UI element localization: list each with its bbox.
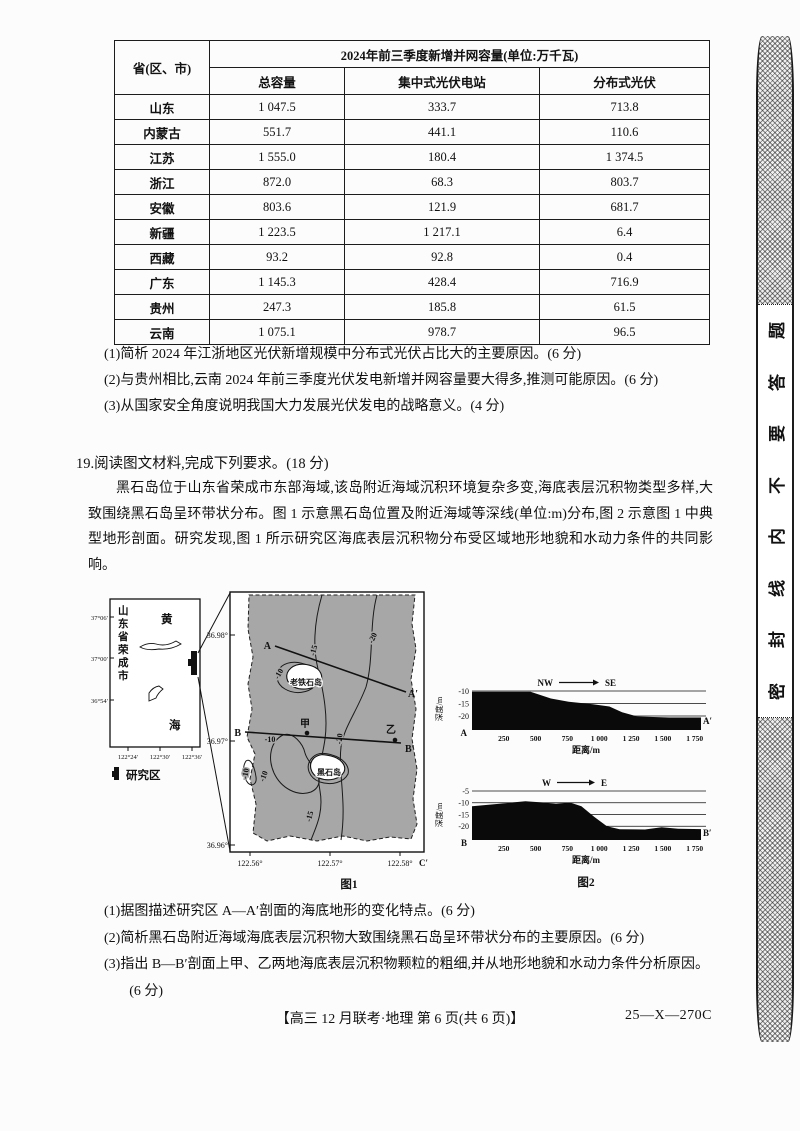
table-row: 广东1 145.3428.4716.9 (115, 270, 710, 295)
profile-b-start: B (461, 838, 467, 848)
table-row: 江苏1 555.0180.41 374.5 (115, 145, 710, 170)
map-lon-2: 122.57° (317, 859, 342, 868)
depth-tick-label: -20 (458, 712, 469, 721)
seal-char: 线 (763, 580, 788, 597)
profile-b-plot: -5-10-15-202505007501 0001 2501 5001 750 (458, 787, 706, 853)
distance-tick-label: 750 (562, 844, 574, 853)
seal-char: 内 (763, 528, 788, 545)
depth-tick-label: -10 (458, 799, 469, 808)
inset-lat-3: 36°54′ (91, 698, 109, 705)
svg-text:研究区: 研究区 (126, 768, 161, 782)
distance-tick-label: 1 750 (686, 844, 703, 853)
table-row: 西藏93.292.80.4 (115, 245, 710, 270)
q18-item-2: (2)与贵州相比,云南 2024 年前三季度光伏发电新增并网容量要大得多,推测可… (104, 368, 719, 394)
island-lower-label: 黑石岛 (317, 767, 341, 777)
table-row: 浙江872.068.3803.7 (115, 170, 710, 195)
question19-subquestions: (1)据图描述研究区 A—A′剖面的海底地形的变化特点。(6 分) (2)简析黑… (104, 899, 716, 1005)
question18-subquestions: (1)简析 2024 年江浙地区光伏新增规模中分布式光伏占比大的主要原因。(6 … (104, 342, 719, 420)
distance-tick-label: 500 (530, 844, 542, 853)
profile-b-dir-to: E (601, 778, 607, 788)
zoom-connector-top (198, 593, 230, 653)
depth-tick-label: -15 (458, 810, 469, 819)
seal-char: 封 (763, 631, 788, 648)
inset-lat-1: 37°06′ (91, 615, 109, 622)
distance-tick-label: 250 (498, 844, 510, 853)
q18-item-3: (3)从国家安全角度说明我国大力发展光伏发电的战略意义。(4 分) (104, 394, 719, 420)
distance-tick-label: 1 500 (654, 734, 671, 743)
svg-text:A′: A′ (408, 689, 418, 700)
svg-text:省: 省 (117, 630, 129, 643)
point-yi-label: 乙 (386, 724, 396, 736)
distance-tick-label: 1 750 (686, 734, 703, 743)
seal-text-window: 题 答 要 不 内 线 封 密 (758, 304, 792, 718)
q19-item-3: (3)指出 B—B′剖面上甲、乙两地海底表层沉积物颗粒的粗细,并从地形地貌和水动… (104, 952, 716, 1005)
table-span-header: 2024年前三季度新增并网容量(单位:万千瓦) (210, 41, 710, 68)
depth-tick-label: -15 (458, 699, 469, 708)
profile-a-dir-to: SE (605, 678, 616, 688)
seal-char: 题 (763, 322, 788, 339)
svg-text:市: 市 (118, 669, 129, 682)
distance-tick-label: 250 (498, 734, 510, 743)
question19-material: 黑石岛位于山东省荣成市东部海域,该岛附近海域沉积环境复杂多变,海底表层沉积物类型… (88, 476, 713, 578)
table-subheader-total: 总容量 (210, 68, 345, 95)
distance-tick-label: 1 250 (623, 734, 640, 743)
map-lat-1: 36.98° (207, 631, 228, 640)
figure2-caption: 图2 (577, 875, 594, 889)
map-lon-1: 122.56° (237, 859, 262, 868)
seal-char: 不 (763, 477, 788, 494)
map-lat-2: 36.97° (207, 737, 228, 746)
inset-lon-1: 122°24′ (118, 754, 139, 761)
figure-area: 37°06′ 37°00′ 36°54′ 山 东 省 荣 成 市 黄 海 12 (85, 589, 735, 895)
seal-char: 要 (763, 425, 788, 442)
table-col0-header: 省(区、市) (115, 41, 210, 95)
figure1-caption: 图1 (340, 877, 357, 891)
inset-sea-label-bottom: 海 (169, 718, 181, 732)
q18-item-1: (1)简析 2024 年江浙地区光伏新增规模中分布式光伏占比大的主要原因。(6 … (104, 342, 719, 368)
q19-item-2: (2)简析黑石岛附近海域海底表层沉积物大致围绕黑石岛呈环带状分布的主要原因。(6… (104, 926, 716, 953)
pv-capacity-table: 省(区、市) 2024年前三季度新增并网容量(单位:万千瓦) 总容量 集中式光伏… (114, 40, 710, 345)
svg-text:成: 成 (118, 656, 129, 669)
depth-tick-label: -20 (458, 822, 469, 831)
footer-paper-code: 25—X—270C (625, 1008, 712, 1024)
footer-exam-info: 【高三 12 月联考·地理 第 6 页(共 6 页)】 (276, 1012, 525, 1027)
svg-text:B: B (234, 728, 241, 739)
seafloor-profile (472, 692, 701, 730)
research-area-sea (247, 595, 417, 841)
island-upper-label: 老铁石岛 (289, 677, 322, 687)
table-subheader-centralized: 集中式光伏电站 (345, 68, 540, 95)
seal-strip: 题 答 要 不 内 线 封 密 (756, 36, 794, 1042)
map-lon-3: 122.58° (387, 859, 412, 868)
legend-study-area: 研究区 (112, 767, 161, 782)
exam-page: 省(区、市) 2024年前三季度新增并网容量(单位:万千瓦) 总容量 集中式光伏… (0, 0, 800, 1131)
svg-text:-10: -10 (265, 735, 276, 744)
inset-sea-label-top: 黄 (161, 612, 173, 626)
table-row: 新疆1 223.51 217.16.4 (115, 220, 710, 245)
page-footer: 【高三 12 月联考·地理 第 6 页(共 6 页)】 25—X—270C (0, 1008, 800, 1028)
table-row: 内蒙古551.7441.1110.6 (115, 120, 710, 145)
inset-lon-3: 122°36′ (182, 754, 203, 761)
distance-tick-label: 1 500 (654, 844, 671, 853)
arrowhead (589, 780, 595, 786)
svg-text:山: 山 (118, 604, 129, 617)
svg-text:东: 东 (118, 617, 129, 630)
profile-b-end: B′ (703, 828, 712, 838)
point-jia-label: 甲 (300, 718, 310, 730)
point-yi-dot (393, 738, 398, 743)
inset-lon-2: 122°30′ (150, 754, 171, 761)
profile-b-dir-from: W (542, 778, 551, 788)
distance-tick-label: 1 000 (591, 844, 608, 853)
profile-a-start: A (461, 728, 468, 738)
table-row: 云南1 075.1978.796.5 (115, 320, 710, 345)
seal-char: 答 (763, 374, 788, 391)
profile-a-xlabel: 距离/m (572, 744, 601, 755)
map-corner-label: C′ (419, 858, 428, 868)
table-row: 贵州247.3185.861.5 (115, 295, 710, 320)
distance-tick-label: 1 250 (623, 844, 640, 853)
depth-tick-label: -10 (458, 687, 469, 696)
table-subheader-distributed: 分布式光伏 (540, 68, 710, 95)
question19-heading: 19.阅读图文材料,完成下列要求。(18 分) (76, 452, 716, 473)
seafloor-profile (472, 801, 701, 840)
main-map: 36.98° 36.97° 36.96° -10 -15 -20 -20 -10… (207, 592, 428, 891)
profile-b-ylabel: 深度/m (434, 802, 444, 827)
arrowhead (593, 680, 599, 686)
profile-a-end: A′ (703, 716, 712, 726)
distance-tick-label: 1 000 (591, 734, 608, 743)
svg-text:A: A (264, 641, 272, 652)
distance-tick-label: 500 (530, 734, 542, 743)
svg-text:荣: 荣 (117, 643, 129, 656)
profile-a-plot: -10-15-202505007501 0001 2501 5001 750 (458, 687, 706, 743)
inset-lat-2: 37°00′ (91, 656, 109, 663)
profile-b-xlabel: 距离/m (572, 854, 601, 865)
profile-a-ylabel: 深度/m (434, 696, 444, 721)
svg-text:B′: B′ (405, 744, 415, 755)
profile-a-chart: NW SE 深度/m -10-15-202505007501 0001 2501… (434, 678, 712, 755)
svg-text:-10: -10 (240, 768, 251, 780)
seal-char: 密 (763, 683, 788, 700)
depth-tick-label: -5 (462, 787, 469, 796)
profile-a-dir-from: NW (538, 678, 554, 688)
map-lat-3: 36.96° (207, 841, 228, 850)
q19-item-1: (1)据图描述研究区 A—A′剖面的海底地形的变化特点。(6 分) (104, 899, 716, 926)
table-row: 山东1 047.5333.7713.8 (115, 95, 710, 120)
point-jia-dot (305, 731, 310, 736)
table-row: 安徽803.6121.9681.7 (115, 195, 710, 220)
profile-b-chart: W E 深度/m -5-10-15-202505007501 0001 2501… (434, 778, 712, 889)
zoom-connector-bottom (198, 677, 230, 851)
distance-tick-label: 750 (562, 734, 574, 743)
